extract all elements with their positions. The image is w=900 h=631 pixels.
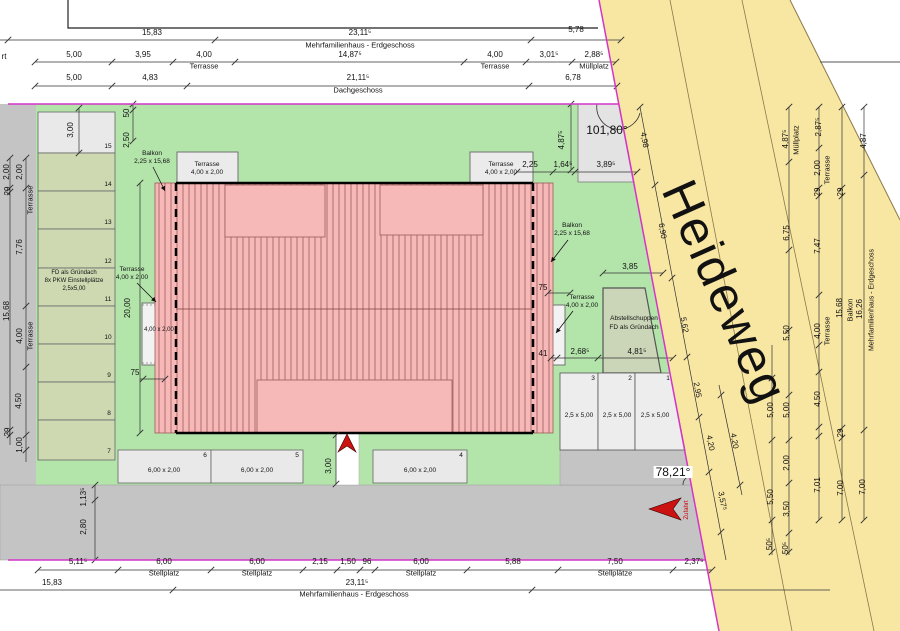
neighbour-outline (68, 0, 598, 28)
garage-boxes (560, 373, 685, 450)
parking-column (38, 112, 115, 460)
building-roof (155, 183, 553, 433)
access-road (0, 485, 705, 560)
site-plan: 15,8323,11⁵Mehrfamilienhaus - Erdgeschos… (0, 0, 900, 631)
parking-row (118, 450, 467, 483)
site-plan-drawing (0, 0, 900, 631)
driveway-apron (560, 450, 691, 485)
